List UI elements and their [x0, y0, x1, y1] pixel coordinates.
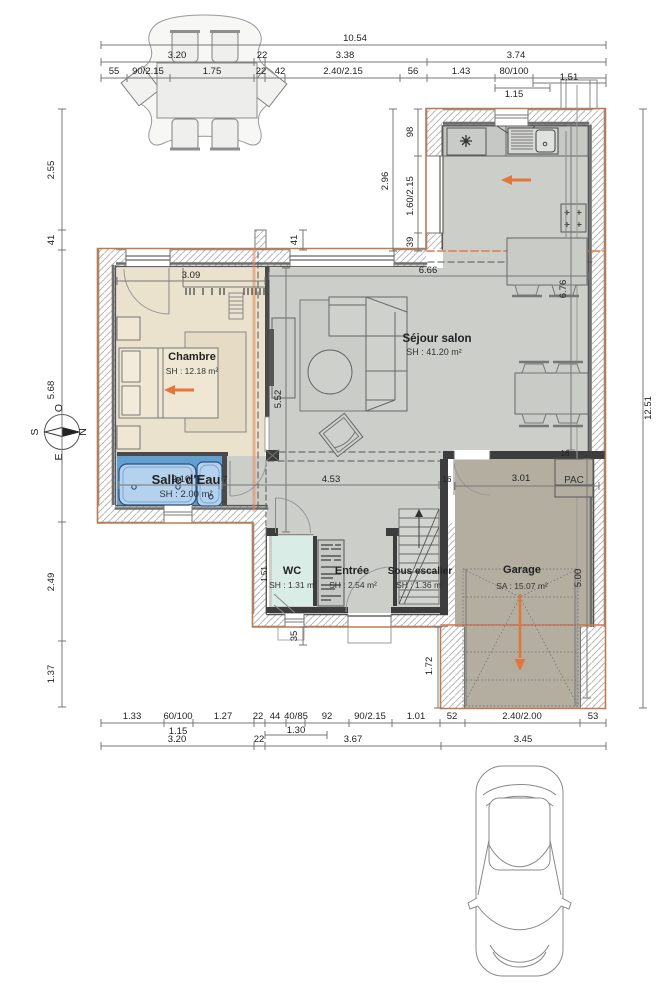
svg-text:E: E — [53, 453, 65, 460]
svg-text:3.20: 3.20 — [168, 734, 187, 745]
svg-text:35: 35 — [289, 631, 300, 642]
svg-text:6.76: 6.76 — [558, 280, 569, 299]
svg-text:Garage: Garage — [503, 564, 541, 576]
svg-text:2.55: 2.55 — [46, 161, 57, 180]
svg-text:1.72: 1.72 — [424, 657, 435, 676]
svg-text:Sous escalier: Sous escalier — [388, 566, 453, 577]
svg-text:39: 39 — [405, 237, 416, 248]
svg-text:80/100: 80/100 — [499, 66, 528, 77]
svg-text:3.20: 3.20 — [168, 50, 187, 61]
svg-text:SH : 2.54 m²: SH : 2.54 m² — [329, 580, 377, 590]
svg-text:6.66: 6.66 — [419, 265, 438, 276]
svg-text:1.51: 1.51 — [560, 72, 579, 83]
svg-text:41: 41 — [289, 235, 300, 246]
svg-text:1.75: 1.75 — [203, 66, 222, 77]
svg-text:4.53: 4.53 — [322, 474, 341, 485]
svg-text:16: 16 — [561, 449, 570, 458]
svg-text:SH : 1.31 m²: SH : 1.31 m² — [269, 580, 317, 590]
svg-text:1.30: 1.30 — [287, 725, 306, 736]
svg-text:22: 22 — [257, 50, 268, 61]
svg-text:41: 41 — [46, 235, 57, 246]
svg-text:Salle d'Eau: Salle d'Eau — [152, 472, 221, 487]
svg-text:5.68: 5.68 — [46, 381, 57, 400]
svg-text:SH : 12.18 m²: SH : 12.18 m² — [166, 366, 219, 376]
svg-text:60/100: 60/100 — [163, 711, 192, 722]
svg-text:7: 7 — [223, 475, 228, 484]
svg-text:90/2.15: 90/2.15 — [132, 66, 164, 77]
svg-text:12.51: 12.51 — [643, 396, 654, 420]
svg-text:1.60/2.15: 1.60/2.15 — [405, 176, 416, 216]
svg-text:3.01: 3.01 — [512, 473, 531, 484]
svg-text:2.40/2.15: 2.40/2.15 — [323, 66, 363, 77]
svg-text:S: S — [29, 428, 41, 435]
svg-text:3.74: 3.74 — [507, 50, 526, 61]
svg-text:1.01: 1.01 — [407, 711, 426, 722]
svg-text:22: 22 — [253, 711, 264, 722]
svg-text:52: 52 — [447, 711, 458, 722]
svg-text:55: 55 — [109, 66, 120, 77]
svg-text:1.15: 1.15 — [505, 89, 524, 100]
svg-text:98: 98 — [405, 127, 416, 138]
svg-text:SA : 15.07 m²: SA : 15.07 m² — [496, 581, 548, 591]
svg-text:16: 16 — [443, 475, 452, 484]
svg-text:92: 92 — [322, 711, 333, 722]
svg-text:3.09: 3.09 — [182, 270, 201, 281]
svg-text:3.45: 3.45 — [514, 734, 533, 745]
svg-text:WC: WC — [283, 565, 301, 577]
svg-text:1.51: 1.51 — [260, 566, 269, 582]
svg-text:PAC: PAC — [564, 475, 584, 486]
svg-text:2.96: 2.96 — [380, 172, 391, 191]
svg-text:5.52: 5.52 — [273, 390, 284, 409]
svg-text:40/85: 40/85 — [284, 711, 308, 722]
svg-text:22: 22 — [256, 66, 267, 77]
svg-text:53: 53 — [588, 711, 599, 722]
svg-text:42: 42 — [275, 66, 286, 77]
svg-text:1.43: 1.43 — [452, 66, 471, 77]
svg-text:SH : 1.36 m²: SH : 1.36 m² — [396, 580, 444, 590]
svg-text:3.38: 3.38 — [336, 50, 355, 61]
svg-text:1.37: 1.37 — [46, 665, 57, 684]
svg-text:22: 22 — [254, 734, 265, 745]
svg-text:44: 44 — [270, 711, 281, 722]
svg-text:SH : 2.00 m²: SH : 2.00 m² — [159, 489, 212, 500]
svg-text:O: O — [53, 404, 65, 412]
svg-text:1.33: 1.33 — [123, 711, 142, 722]
svg-text:2.49: 2.49 — [46, 573, 57, 592]
svg-text:1.27: 1.27 — [214, 711, 233, 722]
svg-text:N: N — [77, 428, 89, 436]
svg-text:Séjour salon: Séjour salon — [402, 333, 471, 345]
svg-text:10.54: 10.54 — [343, 33, 367, 44]
svg-text:SH : 41.20 m²: SH : 41.20 m² — [406, 347, 462, 357]
svg-text:90/2.15: 90/2.15 — [354, 711, 386, 722]
svg-text:Entrée: Entrée — [335, 565, 369, 577]
svg-text:3.67: 3.67 — [344, 734, 363, 745]
svg-text:56: 56 — [408, 66, 419, 77]
svg-text:5.00: 5.00 — [573, 569, 584, 588]
svg-text:Chambre: Chambre — [168, 351, 216, 363]
svg-text:2.40/2.00: 2.40/2.00 — [502, 711, 542, 722]
